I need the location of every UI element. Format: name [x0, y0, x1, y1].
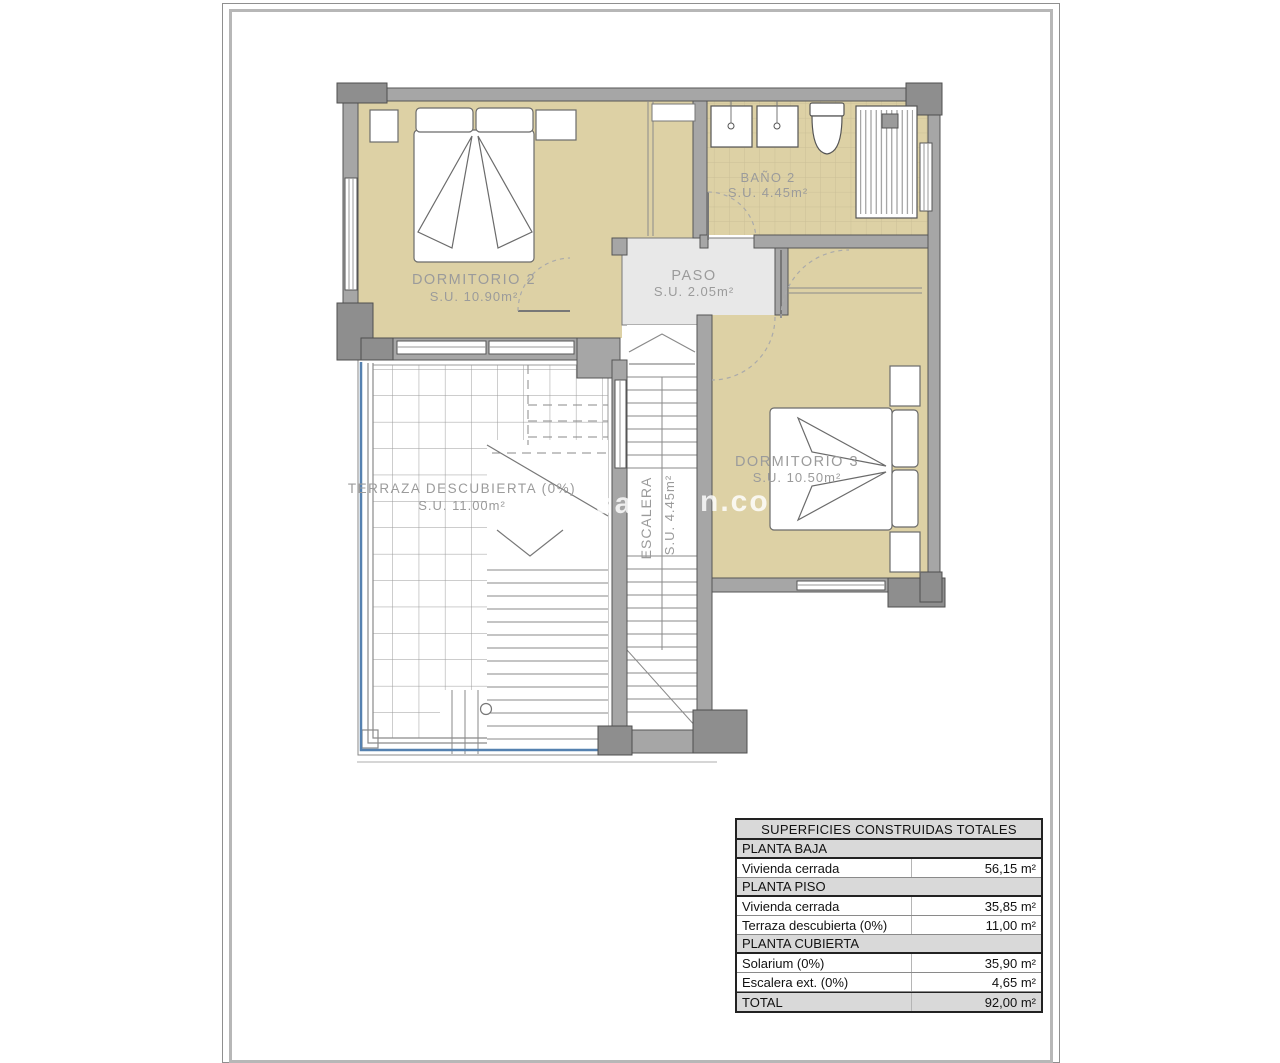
table-row: Vivienda cerrada 35,85 m² [737, 897, 1041, 916]
table-row: Escalera ext. (0%) 4,65 m² [737, 973, 1041, 992]
terrace-drain [481, 704, 492, 715]
sink-2 [757, 101, 798, 147]
table-row-total: TOTAL 92,00 m² [737, 992, 1041, 1011]
window-left [345, 178, 357, 290]
surfaces-table: SUPERFICIES CONSTRUIDAS TOTALES PLANTA B… [735, 818, 1043, 1013]
label-dormitorio2: DORMITORIO 2 [412, 272, 536, 288]
window-stair-west [615, 380, 626, 468]
label-escalera: ESCALERA [638, 477, 654, 560]
label-dormitorio3: DORMITORIO 3 [735, 454, 859, 470]
label-dormitorio3-area: S.U. 10.50m² [753, 470, 842, 485]
table-row: Solarium (0%) 35,90 m² [737, 954, 1041, 973]
window-dorm3-south [797, 581, 885, 590]
label-dormitorio2-area: S.U. 10.90m² [430, 289, 519, 304]
table-row-planta-piso: PLANTA PISO [737, 878, 1041, 897]
table-row-planta-cubierta: PLANTA CUBIERTA [737, 935, 1041, 954]
label-bano2-area: S.U. 4.45m² [728, 185, 808, 200]
table-row-planta-baja: PLANTA BAJA [737, 840, 1041, 859]
label-bano2: BAÑO 2 [741, 170, 796, 185]
terrace [358, 360, 612, 755]
label-paso: PASO [671, 268, 716, 284]
label-escalera-area: S.U. 4.45m² [662, 475, 677, 555]
shower [856, 106, 917, 218]
label-terraza: TERRAZA DESCUBIERTA (0%) [348, 481, 576, 496]
surfaces-table-title: SUPERFICIES CONSTRUIDAS TOTALES [737, 820, 1041, 840]
window-dorm2-south-1 [397, 341, 486, 354]
table-row: Terraza descubierta (0%) 11,00 m² [737, 916, 1041, 935]
label-terraza-area: S.U. 11.00m² [418, 498, 506, 513]
floor-plan: DORMITORIO 2 S.U. 10.90m² BAÑO 2 S.U. 4.… [0, 0, 1280, 1024]
sink-1 [711, 101, 752, 147]
label-paso-area: S.U. 2.05m² [654, 284, 734, 299]
window-bath-east [920, 143, 932, 211]
window-dorm2-south-2 [489, 341, 574, 354]
table-row: Vivienda cerrada 56,15 m² [737, 859, 1041, 878]
